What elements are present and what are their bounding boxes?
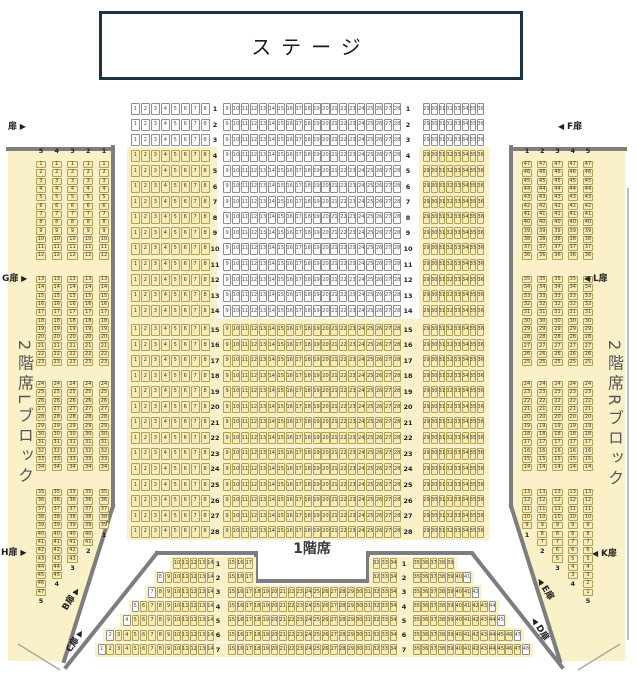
seat: 36 xyxy=(83,497,93,504)
seat: 20 xyxy=(321,324,329,336)
seat: 2 xyxy=(141,463,150,475)
seat: 12 xyxy=(250,417,258,429)
seat: 3 xyxy=(151,305,160,317)
seat: 20 xyxy=(67,334,77,341)
seat: 30 xyxy=(431,417,438,429)
seat: 23 xyxy=(296,601,304,612)
seat: 33 xyxy=(381,601,389,612)
seat: 25 xyxy=(568,359,578,366)
seat: 34 xyxy=(462,495,469,507)
seat: 11 xyxy=(583,506,593,513)
seat: 30 xyxy=(431,370,438,382)
seat: 28 xyxy=(393,103,401,115)
row-label: 5 xyxy=(406,167,411,175)
seat: 18 xyxy=(304,417,312,429)
seat: 5 xyxy=(171,290,180,302)
seat: 39 xyxy=(67,522,77,529)
seat: 22 xyxy=(83,351,93,358)
seat: 11 xyxy=(241,119,249,131)
seat: 13 xyxy=(259,448,267,460)
seat: 33 xyxy=(36,456,46,463)
seat: 5 xyxy=(568,555,578,562)
seat: 27 xyxy=(384,495,392,507)
seat: 12 xyxy=(250,510,258,522)
seat: 26 xyxy=(322,587,330,598)
seat: 22 xyxy=(339,212,347,224)
seat: 13 xyxy=(52,276,62,283)
seat: 18 xyxy=(36,318,46,325)
seat: 27 xyxy=(568,342,578,349)
column-label: 5 xyxy=(39,597,44,605)
seat: 14 xyxy=(268,103,276,115)
seat: 23 xyxy=(348,119,356,131)
row-label: 3 xyxy=(406,136,411,144)
seat: 9 xyxy=(223,134,231,146)
seat: 33 xyxy=(454,196,461,208)
column-label: 5 xyxy=(39,147,44,155)
seat: 28 xyxy=(393,150,401,162)
seat: 33 xyxy=(454,386,461,398)
seat: 22 xyxy=(339,103,347,115)
seat: 29 xyxy=(583,326,593,333)
seat: 30 xyxy=(431,274,438,286)
seat: 39 xyxy=(447,644,455,655)
seat: 15 xyxy=(277,243,285,255)
seat: 39 xyxy=(447,572,455,583)
seat: 17 xyxy=(295,510,303,522)
seat: 25 xyxy=(366,448,374,460)
seat: 12 xyxy=(250,227,258,239)
seat: 33 xyxy=(83,456,93,463)
seat: 3 xyxy=(151,448,160,460)
seat: 12 xyxy=(250,401,258,413)
seat: 39 xyxy=(447,630,455,641)
seat: 37 xyxy=(430,572,438,583)
seat: 27 xyxy=(384,274,392,286)
seat: 18 xyxy=(304,274,312,286)
row-label: 18 xyxy=(403,372,412,380)
seat: 20 xyxy=(321,510,329,522)
seat: 2 xyxy=(99,169,109,176)
seat: 10 xyxy=(232,212,240,224)
seat: 17 xyxy=(245,644,253,655)
seat: 7 xyxy=(52,211,62,218)
seat: 4 xyxy=(161,227,170,239)
seat: 24 xyxy=(357,324,365,336)
seat: 9 xyxy=(165,601,173,612)
seat: 6 xyxy=(181,448,190,460)
seating-chart: ステージ 2階席Lブロック 2階席Rブロック 1階席 1234567811910… xyxy=(0,0,637,675)
seat: 26 xyxy=(322,601,330,612)
seat: 40 xyxy=(583,219,593,226)
seat: 14 xyxy=(268,370,276,382)
seat: 16 xyxy=(237,587,245,598)
row-label: 6 xyxy=(216,631,221,639)
seat: 39 xyxy=(583,227,593,234)
seat: 8 xyxy=(201,259,210,271)
seat: 36 xyxy=(477,432,484,444)
seat: 28 xyxy=(393,355,401,367)
seat: 24 xyxy=(537,381,547,388)
row-label: 9 xyxy=(213,229,218,237)
seat: 30 xyxy=(431,119,438,131)
seat: 16 xyxy=(286,432,294,444)
row-label: 1 xyxy=(216,560,221,568)
seat: 8 xyxy=(201,227,210,239)
seat: 27 xyxy=(330,615,338,626)
seat: 21 xyxy=(330,290,338,302)
seat: 35 xyxy=(413,558,421,569)
seat: 35 xyxy=(470,495,477,507)
seat: 10 xyxy=(552,514,562,521)
seat: 10 xyxy=(232,324,240,336)
seat: 6 xyxy=(67,203,77,210)
seat: 43 xyxy=(522,194,532,201)
seat: 47 xyxy=(537,161,547,168)
seat: 5 xyxy=(171,243,180,255)
seat: 2 xyxy=(141,103,150,115)
seat: 6 xyxy=(181,119,190,131)
seat: 18 xyxy=(254,587,262,598)
seat: 9 xyxy=(223,432,231,444)
seat: 24 xyxy=(522,381,532,388)
seat: 11 xyxy=(241,305,249,317)
seat: 1 xyxy=(131,134,140,146)
seat: 19 xyxy=(568,423,578,430)
seat: 28 xyxy=(393,274,401,286)
seat: 35 xyxy=(413,644,421,655)
seat: 17 xyxy=(295,274,303,286)
seat: 32 xyxy=(446,196,453,208)
seat: 14 xyxy=(268,510,276,522)
seat: 12 xyxy=(250,103,258,115)
seat: 36 xyxy=(477,181,484,193)
seat: 28 xyxy=(393,134,401,146)
seat: 13 xyxy=(198,601,206,612)
seat: 36 xyxy=(477,165,484,177)
seat: 13 xyxy=(259,495,267,507)
seat: 40 xyxy=(455,615,463,626)
seat: 19 xyxy=(99,326,109,333)
seat: 4 xyxy=(583,564,593,571)
seat: 13 xyxy=(259,243,267,255)
seat: 5 xyxy=(171,401,180,413)
seat: 32 xyxy=(446,290,453,302)
seat: 26 xyxy=(375,448,383,460)
seat: 5 xyxy=(171,355,180,367)
seat: 23 xyxy=(348,103,356,115)
seat: 36 xyxy=(583,252,593,259)
seat: 35 xyxy=(470,479,477,491)
seat: 31 xyxy=(439,134,446,146)
seat: 33 xyxy=(381,558,389,569)
seat: 29 xyxy=(423,103,430,115)
seat: 10 xyxy=(232,370,240,382)
seat: 18 xyxy=(254,615,262,626)
seat: 42 xyxy=(472,644,480,655)
seat: 16 xyxy=(286,401,294,413)
seat: 8 xyxy=(201,526,210,538)
seat: 16 xyxy=(286,510,294,522)
seat: 31 xyxy=(439,339,446,351)
seat: 38 xyxy=(438,558,446,569)
seat: 21 xyxy=(330,339,338,351)
seat: 17 xyxy=(245,572,253,583)
seat: 19 xyxy=(313,355,321,367)
seat: 34 xyxy=(462,355,469,367)
seat: 12 xyxy=(190,587,198,598)
seat: 46 xyxy=(505,644,513,655)
seat: 40 xyxy=(455,587,463,598)
seat: 18 xyxy=(304,212,312,224)
seat: 4 xyxy=(161,196,170,208)
seat: 8 xyxy=(201,196,210,208)
seat: 12 xyxy=(250,181,258,193)
seat: 41 xyxy=(463,601,471,612)
seat: 28 xyxy=(393,495,401,507)
seat: 26 xyxy=(375,370,383,382)
seat: 45 xyxy=(497,630,505,641)
seat: 4 xyxy=(161,463,170,475)
seat: 8 xyxy=(83,219,93,226)
seat: 43 xyxy=(583,194,593,201)
seat: 37 xyxy=(537,244,547,251)
seat: 30 xyxy=(431,150,438,162)
seat: 20 xyxy=(321,386,329,398)
seat: 43 xyxy=(480,630,488,641)
seat: 36 xyxy=(99,497,109,504)
seat: 8 xyxy=(201,370,210,382)
seat: 17 xyxy=(295,243,303,255)
seat: 1 xyxy=(131,370,140,382)
seat: 28 xyxy=(67,414,77,421)
seat: 4 xyxy=(161,370,170,382)
seat: 33 xyxy=(454,463,461,475)
seat: 22 xyxy=(339,386,347,398)
seat: 34 xyxy=(462,181,469,193)
seat: 11 xyxy=(36,244,46,251)
seat: 10 xyxy=(83,236,93,243)
seat: 25 xyxy=(83,389,93,396)
seat: 34 xyxy=(390,587,398,598)
seat: 2 xyxy=(141,417,150,429)
seat: 5 xyxy=(171,103,180,115)
seat: 20 xyxy=(321,259,329,271)
seat: 7 xyxy=(583,539,593,546)
seat: 19 xyxy=(313,386,321,398)
seat: 2 xyxy=(141,150,150,162)
seat: 17 xyxy=(67,309,77,316)
seat: 27 xyxy=(384,417,392,429)
seat: 7 xyxy=(191,196,200,208)
seat: 44 xyxy=(489,601,497,612)
seat: 20 xyxy=(583,414,593,421)
seat: 4 xyxy=(161,103,170,115)
seat: 32 xyxy=(446,355,453,367)
seat: 12 xyxy=(250,290,258,302)
seat: 34 xyxy=(462,134,469,146)
seat: 12 xyxy=(250,495,258,507)
seat: 19 xyxy=(313,370,321,382)
seat: 26 xyxy=(375,243,383,255)
seat: 1 xyxy=(131,324,140,336)
seat: 24 xyxy=(52,381,62,388)
seat: 32 xyxy=(568,301,578,308)
seat: 25 xyxy=(366,463,374,475)
seat: 30 xyxy=(568,318,578,325)
seat: 45 xyxy=(52,572,62,579)
seat: 30 xyxy=(99,431,109,438)
seat: 13 xyxy=(259,119,267,131)
seat: 25 xyxy=(366,355,374,367)
row-label: 14 xyxy=(403,307,412,315)
seat: 4 xyxy=(161,243,170,255)
seat: 6 xyxy=(181,134,190,146)
seat: 7 xyxy=(191,355,200,367)
seat: 35 xyxy=(470,463,477,475)
seat: 22 xyxy=(288,587,296,598)
seat: 36 xyxy=(552,252,562,259)
seat: 15 xyxy=(277,510,285,522)
seat: 4 xyxy=(52,186,62,193)
seat: 25 xyxy=(537,359,547,366)
seat: 43 xyxy=(568,194,578,201)
seat: 16 xyxy=(286,495,294,507)
seat: 41 xyxy=(83,539,93,546)
seat: 29 xyxy=(423,259,430,271)
seat: 12 xyxy=(568,497,578,504)
seat: 16 xyxy=(286,150,294,162)
row-label: 7 xyxy=(406,198,411,206)
seat: 21 xyxy=(99,342,109,349)
row-label: 28 xyxy=(210,528,219,536)
seat: 35 xyxy=(413,601,421,612)
seat: 16 xyxy=(286,103,294,115)
seat: 13 xyxy=(583,489,593,496)
seat: 33 xyxy=(381,644,389,655)
seat: 14 xyxy=(268,339,276,351)
seat: 21 xyxy=(330,386,338,398)
seat: 3 xyxy=(67,178,77,185)
seat: 24 xyxy=(305,644,313,655)
seat: 8 xyxy=(201,212,210,224)
seat: 8 xyxy=(157,644,165,655)
seat: 38 xyxy=(52,514,62,521)
seat: 3 xyxy=(151,324,160,336)
seat: 14 xyxy=(83,284,93,291)
seat: 40 xyxy=(552,219,562,226)
seat: 13 xyxy=(259,103,267,115)
seat: 8 xyxy=(157,630,165,641)
seat: 3 xyxy=(151,103,160,115)
seat: 29 xyxy=(67,423,77,430)
seat: 35 xyxy=(413,615,421,626)
seat: 29 xyxy=(83,423,93,430)
seat: 27 xyxy=(330,644,338,655)
seat: 17 xyxy=(295,479,303,491)
seat: 34 xyxy=(462,150,469,162)
seat: 27 xyxy=(384,339,392,351)
seat: 32 xyxy=(446,274,453,286)
seat: 7 xyxy=(83,211,93,218)
seat: 20 xyxy=(321,495,329,507)
seat: 4 xyxy=(568,564,578,571)
seat: 32 xyxy=(373,644,381,655)
seat: 22 xyxy=(339,165,347,177)
seat: 21 xyxy=(330,150,338,162)
seat: 7 xyxy=(36,211,46,218)
row-label: 3 xyxy=(216,588,221,596)
seat: 13 xyxy=(259,181,267,193)
seat: 16 xyxy=(286,324,294,336)
seat: 37 xyxy=(83,506,93,513)
seat: 13 xyxy=(259,417,267,429)
seat: 40 xyxy=(455,630,463,641)
row-label: 26 xyxy=(403,497,412,505)
seat: 23 xyxy=(568,389,578,396)
seat: 36 xyxy=(477,212,484,224)
seat: 9 xyxy=(223,181,231,193)
seat: 12 xyxy=(250,370,258,382)
seat: 23 xyxy=(348,370,356,382)
seat: 17 xyxy=(295,495,303,507)
seat: 25 xyxy=(366,259,374,271)
row-label: 13 xyxy=(210,292,219,300)
seat: 3 xyxy=(151,432,160,444)
seat: 5 xyxy=(36,194,46,201)
seat: 19 xyxy=(313,227,321,239)
seat: 8 xyxy=(52,219,62,226)
seat: 22 xyxy=(339,510,347,522)
seat: 18 xyxy=(304,259,312,271)
seat: 34 xyxy=(390,601,398,612)
seat: 20 xyxy=(321,134,329,146)
seat: 19 xyxy=(262,615,270,626)
seat: 29 xyxy=(568,326,578,333)
seat: 30 xyxy=(431,212,438,224)
seat: 9 xyxy=(223,150,231,162)
seat: 24 xyxy=(568,381,578,388)
seat: 25 xyxy=(366,526,374,538)
seat: 32 xyxy=(446,370,453,382)
seat: 25 xyxy=(366,274,374,286)
seat: 28 xyxy=(339,587,347,598)
seat: 33 xyxy=(537,293,547,300)
seat: 10 xyxy=(232,339,240,351)
seat: 13 xyxy=(198,572,206,583)
seat: 28 xyxy=(339,615,347,626)
seat: 23 xyxy=(348,432,356,444)
seat: 2 xyxy=(141,324,150,336)
seat: 18 xyxy=(304,181,312,193)
seat: 6 xyxy=(181,432,190,444)
seat: 31 xyxy=(439,463,446,475)
seat: 3 xyxy=(83,178,93,185)
seat: 5 xyxy=(171,165,180,177)
seat: 29 xyxy=(423,181,430,193)
seat: 45 xyxy=(583,178,593,185)
seat: 5 xyxy=(171,463,180,475)
seat: 17 xyxy=(36,309,46,316)
row-label: 1 xyxy=(402,560,407,568)
seat: 34 xyxy=(552,284,562,291)
seat: 33 xyxy=(454,324,461,336)
seat: 31 xyxy=(364,644,372,655)
seat: 28 xyxy=(552,334,562,341)
seat: 22 xyxy=(339,432,347,444)
seat: 17 xyxy=(295,386,303,398)
seat: 3 xyxy=(151,181,160,193)
